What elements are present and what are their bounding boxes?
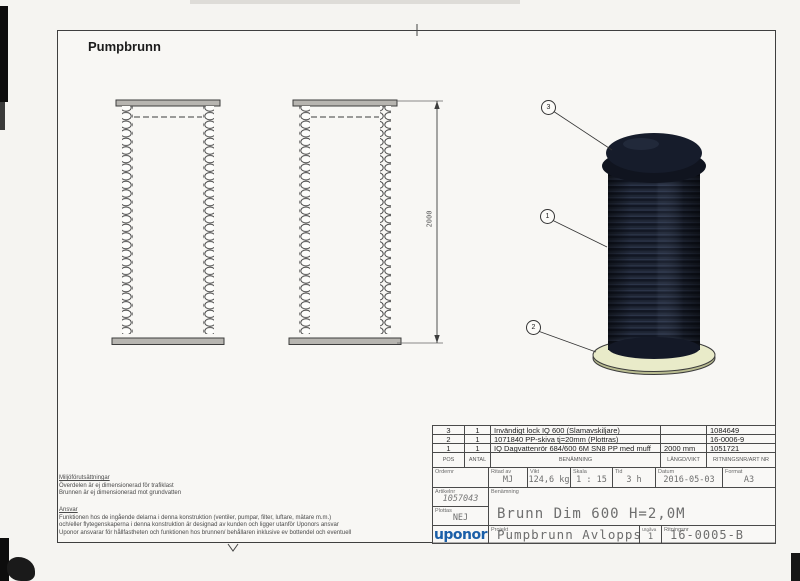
parts-header-pos: POS [432,452,465,468]
titleblock-artikelnr: Artikelnr 1057043 [432,487,489,507]
field-value: 1 [640,532,661,542]
titleblock-ritad-av: Ritad av MJ [488,467,528,488]
uponor-logo: uponor [434,527,487,543]
notes-line: Brunnen är ej dimensionerad mot grundvat… [59,490,181,498]
titleblock-format: Format A3 [722,467,776,488]
field-value: A3 [723,475,775,485]
balloon-1: 1 [540,209,555,224]
field-value: NEJ [433,513,488,523]
notes-line: Funktionen hos de ingående delarna i den… [59,515,351,523]
field-value: 16-0005-B [670,528,744,542]
leader-lines [538,111,612,352]
view-front-1 [112,100,224,345]
view-front-2 [289,100,401,345]
titleblock-tid: Tid 3 h [612,467,656,488]
field-value: 2016-05-03 [656,475,722,485]
cell-text: BENÄMNING [559,457,592,463]
titleblock-skala: Skala 1 : 15 [570,467,613,488]
render-3d [593,133,715,375]
cell-text: ANTAL [469,457,486,463]
titleblock-vikt: Vikt 124,6 kg [527,467,571,488]
titleblock-utgava: Utgåva 1 [639,525,662,544]
titleblock-projekt: Projekt Pumpbrunn Avloppsprf [488,525,640,544]
field-value: MJ [489,475,527,485]
notes-conditions: Miljöförutsättningar Överdelen är ej dim… [59,475,181,498]
titleblock-ordernr: Ordernr [432,467,489,488]
field-label: Ordernr [435,469,454,475]
parts-header-langd: LÄNGD/VIKT [660,452,707,468]
balloon-3: 3 [541,100,556,115]
notes-line: Uponor ansvarar för hållfastheten och fu… [59,530,351,538]
cell-text: RITNINGSNR/ART NR [713,457,769,463]
parts-header-antal: ANTAL [464,452,491,468]
field-value: Pumpbrunn Avloppsprf [497,527,640,542]
balloon-2: 2 [526,320,541,335]
titleblock-datum: Datum 2016-05-03 [655,467,723,488]
field-value: 124,6 kg [528,475,570,485]
balloon-3-number: 3 [547,104,551,111]
notes-line: och/eller flytegenskaperna i denna konst… [59,522,351,530]
field-value: 1057043 [433,494,488,504]
parts-header-artnr: RITNINGSNR/ART NR [706,452,776,468]
titleblock-benamning: Benämning Brunn Dim 600 H=2,0M [488,487,776,526]
notes-heading-2: Ansvar [59,507,351,515]
cell-text: LÄNGD/VIKT [667,457,700,463]
balloon-1-number: 1 [546,213,550,220]
notes-responsibility: Ansvar Funktionen hos de ingående delarn… [59,507,351,537]
titleblock-ritningsnr: Ritningsnr 16-0005-B [661,525,776,544]
cell-text: POS [443,457,455,463]
notes-line: Överdelen är ej dimensionerad för trafik… [59,483,181,491]
dimension-line [397,101,443,343]
drawing-sheet: Pumpbrunn [0,0,800,581]
titleblock-plottas: Plottas NEJ [432,506,489,526]
dimension-value: 2000 [425,211,433,228]
field-label: Benämning [491,489,519,495]
field-value: 3 h [613,475,655,485]
balloon-2-number: 2 [532,324,536,331]
titleblock-logo-cell: uponor [432,525,489,544]
field-value: Brunn Dim 600 H=2,0M [497,506,686,522]
field-value: 1 : 15 [571,475,612,485]
parts-header-benamning: BENÄMNING [490,452,661,468]
notes-heading-1: Miljöförutsättningar [59,475,181,483]
